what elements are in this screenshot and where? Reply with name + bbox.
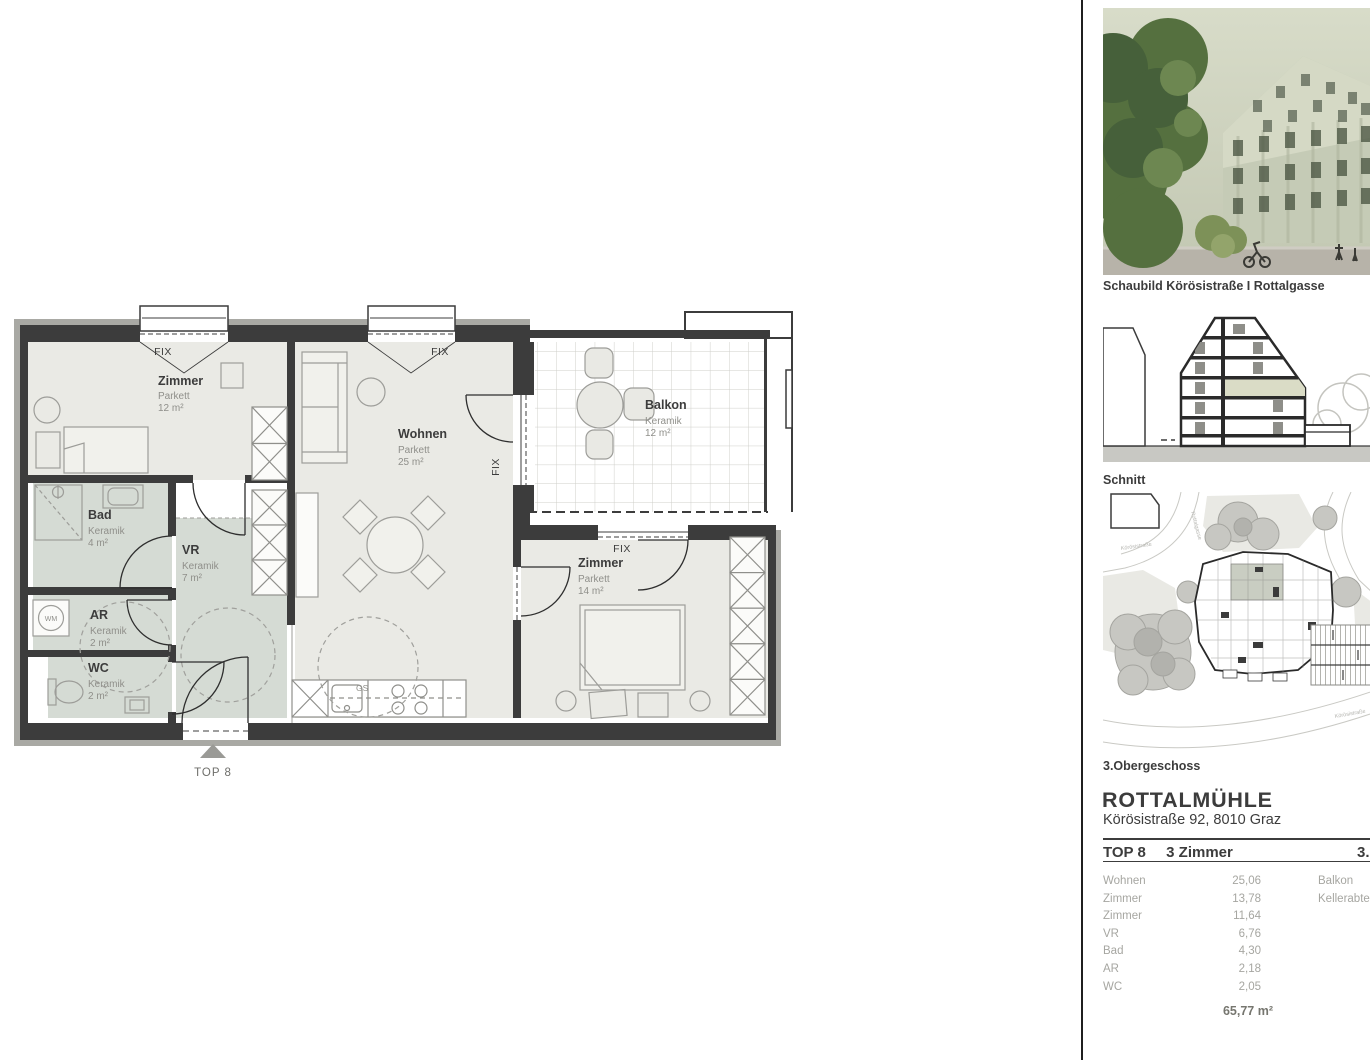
area-label: Zimmer	[1103, 891, 1142, 909]
area-value: 11,64	[1233, 908, 1261, 926]
annex	[1305, 425, 1350, 446]
floor-plan-drawing: Zimmer Parkett 12 m² Wohnen Parkett 25 m…	[0, 295, 820, 795]
fix-window-label: FIX	[613, 543, 631, 555]
room-area: 2 m²	[88, 691, 109, 702]
room-finish: Parkett	[578, 574, 610, 585]
header-rule	[1103, 861, 1370, 862]
unit-marker-label: TOP 8	[194, 767, 232, 779]
room-finish: Keramik	[645, 416, 683, 427]
room-name: WC	[88, 661, 109, 675]
door-bedroom2-opening	[513, 567, 521, 620]
unit-floor: 3.OG	[1357, 844, 1370, 861]
area-value: 25,06	[1232, 873, 1261, 891]
room-name: Balkon	[645, 398, 687, 412]
bed-double	[580, 605, 685, 690]
ground-band	[1103, 446, 1370, 462]
window-balcony-door	[513, 391, 530, 489]
room-name: Zimmer	[578, 556, 623, 570]
balcony-tile-grid	[535, 342, 765, 512]
room-finish: Keramik	[90, 626, 128, 637]
entrance-marker: TOP 8	[194, 744, 232, 779]
room-area: 4 m²	[88, 538, 109, 549]
section-caption: Schnitt	[1103, 473, 1145, 487]
section-drawing	[1103, 300, 1370, 468]
unit-id: TOP 8	[1103, 844, 1146, 861]
fix-window-label: FIX	[154, 346, 172, 358]
room-area: 2 m²	[90, 638, 111, 649]
area-label: Wohnen	[1103, 873, 1146, 891]
room-finish: Keramik	[88, 679, 126, 690]
entrance-arrow-icon	[200, 744, 226, 758]
room-finish: Keramik	[88, 526, 126, 537]
room-area: 7 m²	[182, 573, 203, 584]
table-row: AR 2,18	[1103, 961, 1261, 979]
bed-single	[64, 427, 148, 473]
table-row: Zimmer 11,64	[1103, 908, 1261, 926]
area-label: Balkon	[1318, 875, 1353, 887]
room-finish: Parkett	[398, 445, 430, 456]
siteplan-caption: 3.Obergeschoss	[1103, 759, 1200, 773]
table-row: Wohnen 25,06	[1103, 873, 1261, 891]
dishwasher-label: GS	[356, 683, 369, 693]
area-label: VR	[1103, 926, 1119, 944]
table-row: VR 6,76	[1103, 926, 1261, 944]
room-area: 12 m²	[645, 428, 671, 439]
room-name: VR	[182, 543, 199, 557]
kitchen-counter	[292, 680, 466, 717]
room-area: 25 m²	[398, 457, 424, 468]
unit-type: 3 Zimmer	[1166, 844, 1233, 861]
total-area: 65,77 m²	[1103, 1004, 1273, 1018]
table-row: Balkon	[1318, 873, 1370, 891]
room-finish: Parkett	[158, 391, 190, 402]
neighbor-building	[1103, 328, 1145, 446]
fix-window-label: FIX	[490, 458, 502, 476]
siteplan-drawing: Rottalgasse Körösistraße Körösistraße	[1103, 492, 1370, 754]
area-table: Wohnen 25,06 Zimmer 13,78 Zimmer 11,64 V…	[1103, 873, 1261, 996]
floorplan-sheet: Zimmer Parkett 12 m² Wohnen Parkett 25 m…	[0, 0, 1370, 1060]
room-name: Wohnen	[398, 427, 447, 441]
wardrobe-strip-a	[252, 407, 287, 480]
area-value: 13,78	[1232, 891, 1261, 909]
project-address: Körösistraße 92, 8010 Graz	[1103, 812, 1281, 828]
room-finish: Keramik	[182, 561, 220, 572]
room-name: Zimmer	[158, 374, 203, 388]
unit-header: TOP 8 3 Zimmer 3.OG	[1103, 838, 1370, 861]
room-name: AR	[90, 608, 108, 622]
building-render-image	[1103, 8, 1370, 275]
render-caption: Schaubild Körösistraße I Rottalgasse	[1103, 279, 1370, 293]
table-row: Zimmer 13,78	[1103, 891, 1261, 909]
area-label: Bad	[1103, 943, 1123, 961]
wardrobe-strip-b	[252, 490, 287, 595]
highlighted-floor	[1225, 378, 1305, 396]
area-value: 2,18	[1239, 961, 1261, 979]
room-area: 14 m²	[578, 586, 604, 597]
washer-label: WM	[45, 616, 58, 623]
area-label: AR	[1103, 961, 1119, 979]
table-row: Kellerabteil	[1318, 891, 1370, 909]
table-row: WC 2,05	[1103, 979, 1261, 997]
sofa	[302, 352, 347, 463]
area-value: 6,76	[1239, 926, 1261, 944]
fix-window-label: FIX	[431, 346, 449, 358]
garden-grid	[1311, 625, 1370, 685]
area-value: 4,30	[1239, 943, 1261, 961]
area-label: Kellerabteil	[1318, 893, 1370, 905]
wardrobe-bedroom2	[730, 537, 765, 715]
entrance-opening	[179, 723, 252, 740]
room-area: 12 m²	[158, 403, 184, 414]
extra-area-table: Balkon Kellerabteil	[1318, 873, 1370, 908]
page-divider	[1081, 0, 1083, 1060]
area-label: Zimmer	[1103, 908, 1142, 926]
room-name: Bad	[88, 508, 112, 522]
area-value: 2,05	[1239, 979, 1261, 997]
area-label: WC	[1103, 979, 1122, 997]
sideboard	[296, 493, 318, 597]
table-row: Bad 4,30	[1103, 943, 1261, 961]
neighbor-block	[1111, 494, 1159, 528]
window-bedroom2	[598, 525, 688, 540]
project-title: ROTTALMÜHLE	[1102, 788, 1273, 813]
